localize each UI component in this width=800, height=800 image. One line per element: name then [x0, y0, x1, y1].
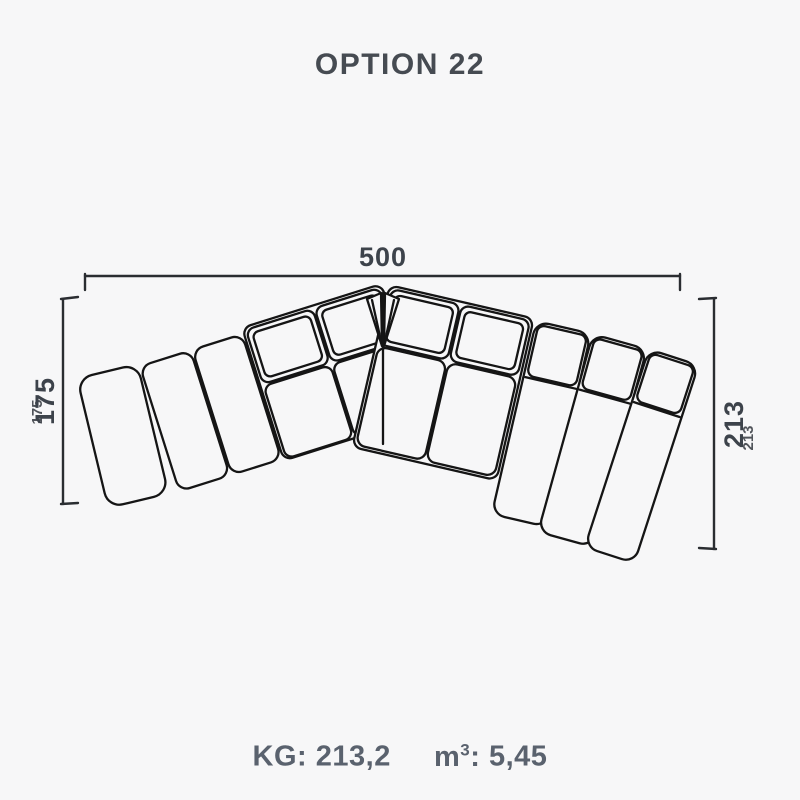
weight-label: KG: [253, 741, 308, 773]
dim-left-label: 175 [30, 377, 60, 425]
sofa-diagram: 500 175 175 213 213 [0, 0, 800, 800]
dim-width-label: 500 [359, 242, 407, 272]
volume-unit: m3: [434, 741, 480, 773]
volume-value: 5,45 [489, 741, 547, 773]
dimension-left [61, 297, 78, 504]
dim-tick [61, 503, 78, 504]
specs-footer: KG: 213,2 m3: 5,45 [0, 740, 800, 774]
sofa-right-wing [341, 285, 700, 567]
sofa-drawing [68, 283, 700, 567]
dim-tick [699, 298, 716, 299]
weight-value: 213,2 [316, 741, 391, 773]
page: OPTION 22 [0, 0, 800, 800]
dim-tick [61, 297, 78, 299]
dim-right-label: 213 [719, 400, 749, 448]
dim-tick [699, 548, 716, 549]
dimension-width [85, 274, 680, 290]
dimension-right [699, 298, 716, 549]
